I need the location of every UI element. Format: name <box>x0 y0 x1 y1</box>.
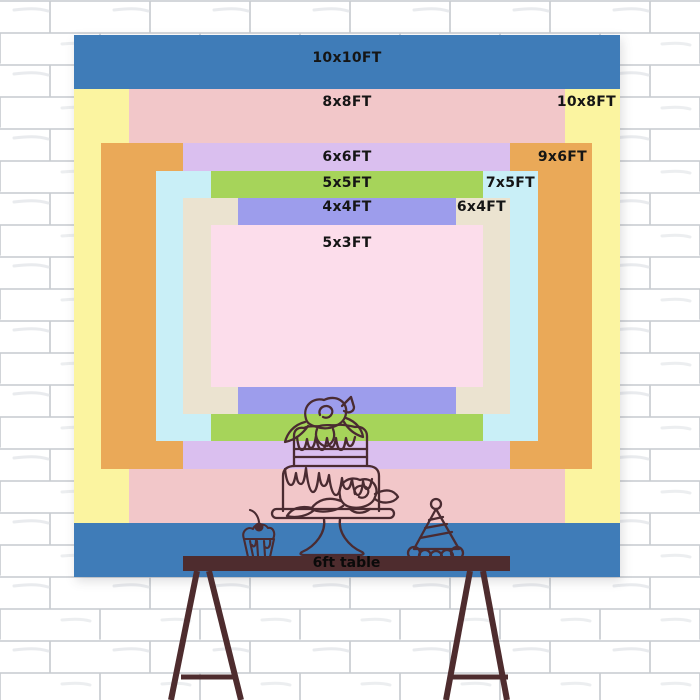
easel <box>0 0 700 700</box>
easel-legs <box>171 571 508 700</box>
table-label: 6ft table <box>313 556 381 571</box>
scene: 10x10FT 8x8FT 10x8FT 6x6FT 9x6FT 5x5FT 7… <box>0 0 700 700</box>
table-bar: 6ft table <box>183 556 510 571</box>
